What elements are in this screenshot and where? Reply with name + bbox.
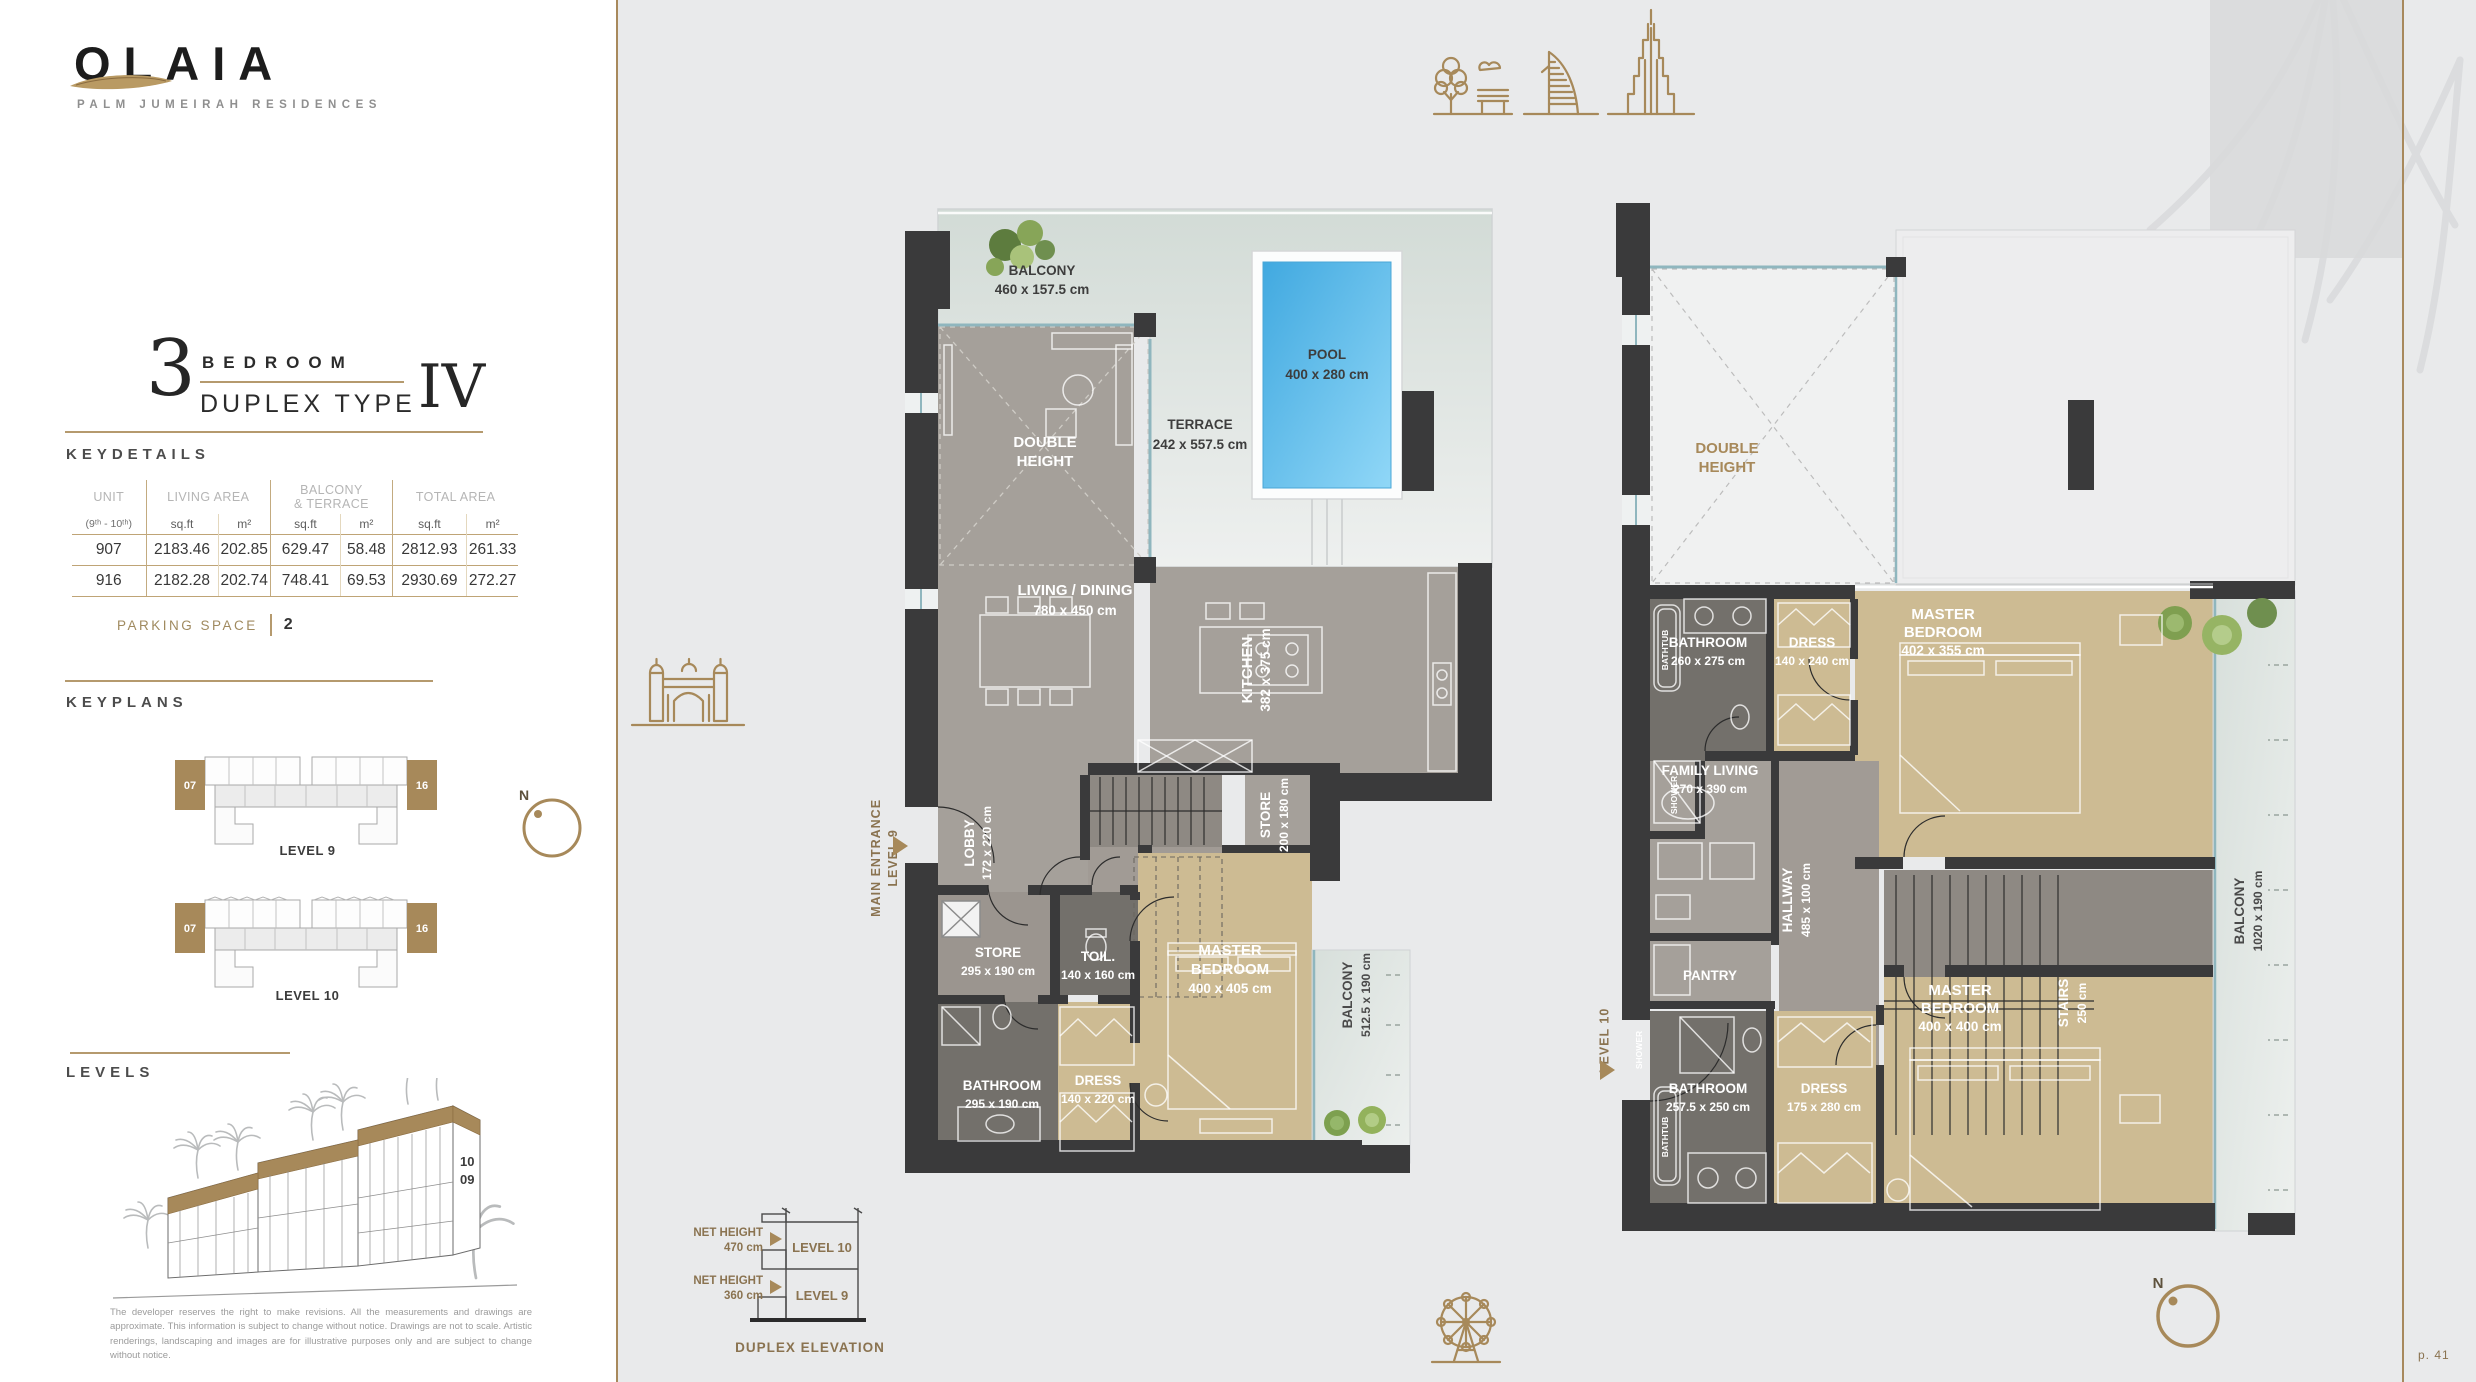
room-dims: 257.5 x 250 cm xyxy=(1666,1100,1750,1114)
room-dims: 402 x 355 cm xyxy=(1901,643,1984,658)
north-compass-icon: N xyxy=(512,782,590,864)
keyplan-level10: 07 16 xyxy=(175,895,440,995)
main-entrance-line2: LEVEL 9 xyxy=(885,783,902,933)
parking-label: PARKING SPACE xyxy=(117,618,258,633)
room-label: MASTER xyxy=(1928,982,1992,999)
ferris-wheel-icon xyxy=(1430,1288,1504,1368)
cell: 2930.69 xyxy=(392,566,466,597)
keyplan-unit-16: 16 xyxy=(416,780,428,792)
burj-al-arab-icon xyxy=(1522,46,1602,120)
cell: 202.85 xyxy=(218,535,270,566)
divider-keydetails xyxy=(65,431,483,433)
col-total-title: TOTAL AREA xyxy=(392,480,518,514)
duplex-elevation: NET HEIGHT 470 cm NET HEIGHT 360 cm LEVE… xyxy=(690,1200,1110,1370)
cell: 69.53 xyxy=(340,566,392,597)
room-label: BEDROOM xyxy=(1904,624,1982,641)
elevation-level9: LEVEL 9 xyxy=(796,1288,849,1303)
room-dims: 400 x 400 cm xyxy=(1918,1019,2001,1034)
room-dims: 400 x 405 cm xyxy=(1188,981,1271,996)
keyplan-level9-label: LEVEL 9 xyxy=(175,843,440,858)
park-icon xyxy=(1432,48,1520,120)
divider-levels xyxy=(70,1052,290,1054)
parking-divider xyxy=(270,614,272,636)
sidebar-gold-rule xyxy=(616,0,618,1382)
room-label: TERRACE xyxy=(1167,417,1232,432)
col-unit-title: UNIT xyxy=(72,480,146,514)
atlantis-icon xyxy=(630,645,748,733)
room-label: BALCONY xyxy=(2232,878,2247,945)
room-dims: 260 x 275 cm xyxy=(1671,654,1745,668)
floorplan-level10: DOUBLE HEIGHT BATHROOM 260 x 275 cm DRES… xyxy=(1600,195,2300,1235)
parking-space: PARKING SPACE 2 xyxy=(117,614,293,636)
total-m2-head: m² xyxy=(466,514,518,535)
fixture-label: SHOWER xyxy=(1634,1031,1644,1069)
room-dims: 140 x 220 cm xyxy=(1061,1092,1135,1106)
parking-value: 2 xyxy=(284,616,293,634)
room-dims: 172 x 220 cm xyxy=(980,806,994,880)
room-label: BATHROOM xyxy=(1669,1081,1748,1096)
main-entrance-line1: MAIN ENTRANCE xyxy=(868,783,885,933)
room-label: KITCHEN xyxy=(1239,637,1256,704)
room-dims: 295 x 190 cm xyxy=(965,1097,1039,1111)
cell: 58.48 xyxy=(340,535,392,566)
room-label: BATHROOM xyxy=(1669,635,1748,650)
right-gold-rule xyxy=(2402,0,2404,1382)
floor-label-09: 09 xyxy=(460,1172,474,1187)
floor-label-10: 10 xyxy=(460,1154,474,1169)
fixture-label: BATHTUB xyxy=(1660,1117,1670,1157)
col-balcony-title: BALCONY & TERRACE xyxy=(270,480,392,514)
compass-n: N xyxy=(519,787,529,803)
room-label: BEDROOM xyxy=(1191,961,1269,978)
net-height-value: 360 cm xyxy=(724,1290,763,1302)
keyplan-level10-label: LEVEL 10 xyxy=(175,988,440,1003)
net-height-label: NET HEIGHT xyxy=(693,1227,763,1239)
room-dims: 400 x 280 cm xyxy=(1285,367,1368,382)
logo-swoosh-icon xyxy=(66,70,206,96)
room-label: STORE xyxy=(1258,792,1273,838)
building-illustration: 10 09 xyxy=(108,1078,522,1310)
level10-entrance-label: LEVEL 10 xyxy=(1597,980,1614,1100)
room-dims: 140 x 240 cm xyxy=(1775,654,1849,668)
room-label: MASTER xyxy=(1911,606,1975,623)
floorplan-level9: BALCONY 460 x 157.5 cm TERRACE 242 x 557… xyxy=(900,195,1560,1215)
keyplan-unit-16: 16 xyxy=(416,923,428,935)
type-numeral: IV xyxy=(418,352,485,422)
keydetails-heading: KEYDETAILS xyxy=(66,446,210,463)
cell: 202.74 xyxy=(218,566,270,597)
room-label: BATHROOM xyxy=(963,1078,1042,1093)
room-dims: 140 x 160 cm xyxy=(1061,968,1135,982)
plan-compass-icon: N xyxy=(2138,1270,2238,1362)
cell: 629.47 xyxy=(270,535,340,566)
title-underline xyxy=(200,381,404,383)
room-label: HEIGHT xyxy=(1699,459,1756,476)
balcony-title-line2: & TERRACE xyxy=(273,497,390,511)
room-dims: 382 x 375 cm xyxy=(1258,628,1273,711)
keyplan-level9: 07 16 xyxy=(175,752,440,852)
room-label: HEIGHT xyxy=(1017,453,1074,470)
living-sqft-head: sq.ft xyxy=(146,514,218,535)
brand-tagline: PALM JUMEIRAH RESIDENCES xyxy=(77,99,382,111)
room-dims: 242 x 557.5 cm xyxy=(1153,437,1248,452)
sidebar: OLAIA PALM JUMEIRAH RESIDENCES 3 BEDROOM… xyxy=(0,0,616,1382)
room-dims: 485 x 100 cm xyxy=(1799,863,1813,937)
fixture-label: SHOWER xyxy=(1669,776,1679,814)
room-label: DRESS xyxy=(1801,1081,1848,1096)
disclaimer-text: The developer reserves the right to make… xyxy=(110,1306,532,1363)
room-dims: 1020 x 190 cm xyxy=(2251,871,2265,952)
page-number: p. 41 xyxy=(2418,1348,2450,1362)
table-row: 916 2182.28 202.74 748.41 69.53 2930.69 … xyxy=(72,566,518,597)
compass-n: N xyxy=(2153,1275,2164,1292)
divider-keyplans xyxy=(65,680,433,682)
bedroom-word: BEDROOM xyxy=(202,353,354,373)
room-label: HALLWAY xyxy=(1780,868,1795,933)
balcony-title-line1: BALCONY xyxy=(273,483,390,497)
cell: 2182.28 xyxy=(146,566,218,597)
room-label: BALCONY xyxy=(1009,263,1076,278)
room-label: DRESS xyxy=(1075,1073,1122,1088)
room-label: BEDROOM xyxy=(1921,1000,1999,1017)
room-label: DOUBLE xyxy=(1013,434,1076,451)
room-label: MASTER xyxy=(1198,942,1262,959)
total-sqft-head: sq.ft xyxy=(392,514,466,535)
room-dims: 175 x 280 cm xyxy=(1787,1100,1861,1114)
room-dims: 200 x 180 cm xyxy=(1277,778,1291,852)
keyplan-unit-07: 07 xyxy=(184,780,196,792)
room-label: LOBBY xyxy=(962,819,977,866)
cell: 272.27 xyxy=(466,566,518,597)
unit-916: 916 xyxy=(72,566,146,597)
col-living-title: LIVING AREA xyxy=(146,480,270,514)
room-label: PANTRY xyxy=(1683,968,1737,983)
room-dims: 780 x 450 cm xyxy=(1033,603,1116,618)
room-label: FAMILY LIVING xyxy=(1662,763,1759,778)
unit-907: 907 xyxy=(72,535,146,566)
room-label: TOIL. xyxy=(1081,949,1115,964)
level10-arrow-icon xyxy=(1600,1060,1615,1080)
room-dims: 250 cm xyxy=(2075,983,2089,1024)
elevation-level10: LEVEL 10 xyxy=(792,1240,852,1255)
room-label: DOUBLE xyxy=(1695,440,1758,457)
brochure-page: OLAIA PALM JUMEIRAH RESIDENCES 3 BEDROOM… xyxy=(0,0,2476,1382)
room-dims: 270 x 390 cm xyxy=(1673,782,1747,796)
room-label: BALCONY xyxy=(1340,962,1355,1029)
fixture-label: BATHTUB xyxy=(1660,630,1670,670)
table-row: 907 2183.46 202.85 629.47 58.48 2812.93 … xyxy=(72,535,518,566)
cell: 2183.46 xyxy=(146,535,218,566)
room-label: DRESS xyxy=(1789,635,1836,650)
key-details-table: UNIT LIVING AREA BALCONY & TERRACE TOTAL… xyxy=(72,480,518,597)
net-height-value: 470 cm xyxy=(724,1242,763,1254)
room-dims: 295 x 190 cm xyxy=(961,964,1035,978)
living-m2-head: m² xyxy=(218,514,270,535)
burj-khalifa-icon xyxy=(1606,8,1698,120)
net-height-label: NET HEIGHT xyxy=(693,1275,763,1287)
keyplans-heading: KEYPLANS xyxy=(66,694,188,711)
cell: 261.33 xyxy=(466,535,518,566)
cell: 748.41 xyxy=(270,566,340,597)
duplex-type-word: DUPLEX TYPE xyxy=(200,390,416,419)
elevation-caption: DUPLEX ELEVATION xyxy=(735,1340,885,1355)
room-label: STAIRS xyxy=(2056,979,2071,1028)
cell: 2812.93 xyxy=(392,535,466,566)
balcony-sqft-head: sq.ft xyxy=(270,514,340,535)
room-dims: 460 x 157.5 cm xyxy=(995,282,1090,297)
room-label: POOL xyxy=(1308,347,1346,362)
room-label: STORE xyxy=(975,945,1021,960)
entrance-arrow-icon xyxy=(893,836,908,856)
bedroom-count: 3 xyxy=(146,324,196,414)
col-unit-sub: (9ᵗʰ - 10ᵗʰ) xyxy=(72,514,146,535)
room-label: LIVING / DINING xyxy=(1017,582,1132,599)
room-dims: 512.5 x 190 cm xyxy=(1359,953,1373,1037)
balcony-m2-head: m² xyxy=(340,514,392,535)
level10-entrance-text: LEVEL 10 xyxy=(1597,980,1614,1100)
main-entrance-label: MAIN ENTRANCE LEVEL 9 xyxy=(868,783,902,933)
keyplan-unit-07: 07 xyxy=(184,923,196,935)
